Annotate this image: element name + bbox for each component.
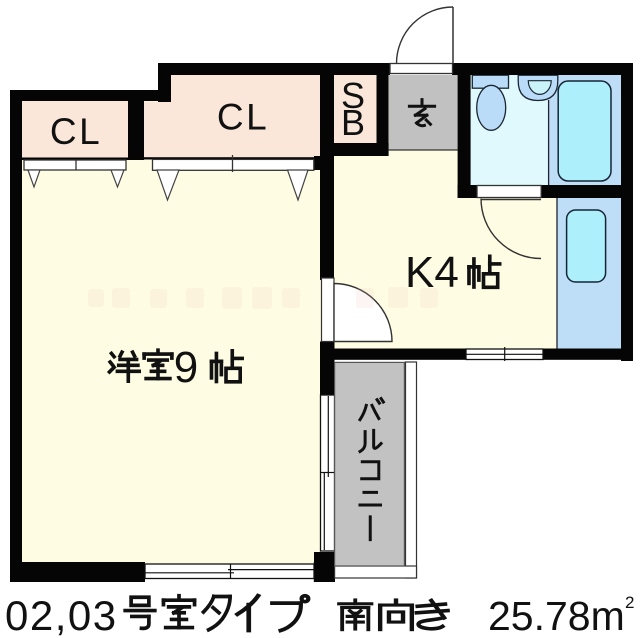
svg-text:CL: CL [217, 97, 269, 138]
svg-text:B: B [341, 102, 365, 143]
svg-text:25.78m: 25.78m [488, 593, 625, 638]
svg-text:02,03: 02,03 [5, 592, 118, 638]
svg-text:CL: CL [50, 111, 102, 152]
svg-text:2: 2 [625, 593, 634, 612]
svg-text:9: 9 [174, 343, 198, 392]
svg-text:K4: K4 [405, 248, 459, 297]
